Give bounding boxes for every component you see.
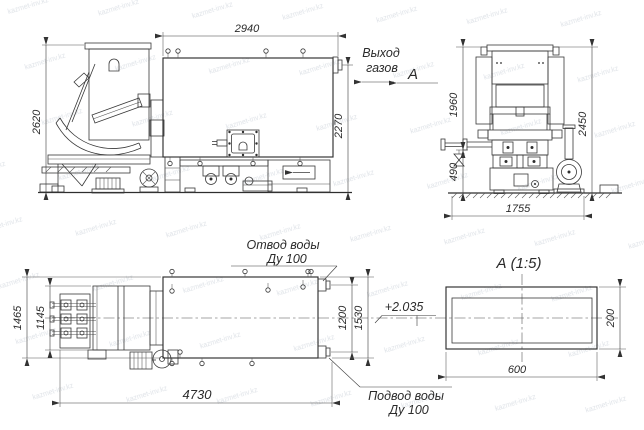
dim-2940: 2940 bbox=[234, 23, 260, 35]
water-outlet-label-line2: Ду 100 bbox=[265, 252, 307, 266]
engineering-drawing: kazmet-inv.kz kazmet-inv.kz bbox=[0, 0, 644, 430]
elevation-value: +2.035 bbox=[385, 300, 424, 314]
section-mark-letter: А bbox=[407, 66, 418, 83]
dim-2450: 2450 bbox=[577, 111, 589, 137]
dim-1145: 1145 bbox=[35, 305, 47, 330]
section-title: А (1:5) bbox=[495, 255, 541, 272]
dim-200: 200 bbox=[605, 308, 617, 328]
dim-2620: 2620 bbox=[31, 109, 43, 135]
dim-4730: 4730 bbox=[183, 387, 213, 402]
gas-outlet-label-line1: Выход bbox=[362, 46, 400, 60]
gas-outlet-label-line2: газов bbox=[366, 61, 398, 75]
water-inlet-label-line2: Ду 100 bbox=[387, 403, 429, 417]
dim-1960: 1960 bbox=[448, 92, 460, 117]
dim-1200: 1200 bbox=[337, 305, 349, 330]
water-outlet-label-line1: Отвод воды bbox=[246, 238, 319, 252]
dim-1755: 1755 bbox=[506, 203, 531, 215]
dim-1465: 1465 bbox=[12, 305, 24, 330]
water-inlet-label-line1: Подвод воды bbox=[368, 389, 444, 403]
dim-600: 600 bbox=[508, 364, 527, 376]
dim-490: 490 bbox=[448, 162, 460, 181]
dim-1530: 1530 bbox=[353, 305, 365, 330]
watermark-layer bbox=[0, 0, 644, 430]
dim-2270: 2270 bbox=[333, 113, 345, 139]
